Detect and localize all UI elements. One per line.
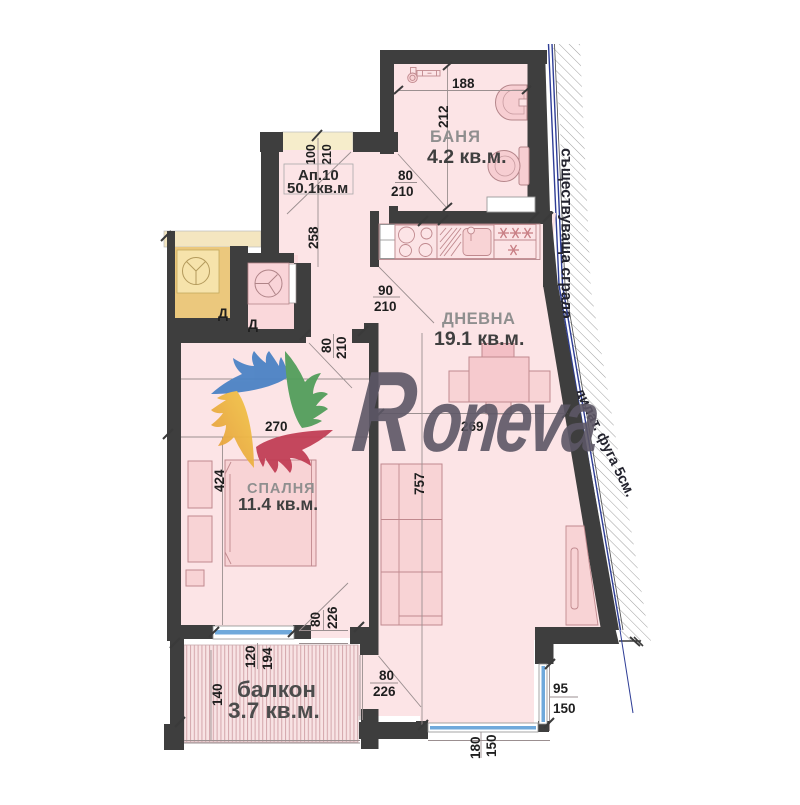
svg-text:140: 140 [210, 683, 225, 706]
svg-text:80: 80 [319, 338, 334, 353]
svg-text:270: 270 [265, 419, 288, 434]
svg-text:80: 80 [308, 612, 323, 627]
svg-text:212: 212 [436, 105, 451, 128]
svg-text:150: 150 [484, 734, 499, 757]
svg-text:150: 150 [553, 701, 576, 716]
svg-text:210: 210 [334, 336, 349, 359]
svg-text:100: 100 [304, 144, 318, 165]
svg-text:oneva: oneva [418, 371, 604, 470]
svg-text:БАНЯ: БАНЯ [430, 128, 481, 146]
svg-text:210: 210 [374, 299, 397, 314]
svg-text:95: 95 [553, 681, 569, 696]
svg-text:210: 210 [320, 144, 334, 165]
svg-text:120: 120 [243, 645, 258, 668]
svg-text:757: 757 [412, 472, 427, 495]
svg-text:258: 258 [306, 226, 321, 249]
svg-text:226: 226 [373, 684, 396, 699]
svg-text:188: 188 [452, 76, 475, 91]
svg-text:19.1 кв.м.: 19.1 кв.м. [434, 328, 524, 350]
svg-text:съществуваща сграда: съществуваща сграда [558, 148, 575, 319]
svg-text:180: 180 [468, 736, 483, 759]
svg-text:226: 226 [325, 606, 340, 629]
svg-text:80: 80 [398, 168, 413, 183]
svg-text:11.4 кв.м.: 11.4 кв.м. [238, 494, 318, 514]
svg-text:210: 210 [391, 184, 414, 199]
svg-text:424: 424 [212, 469, 227, 492]
svg-text:90: 90 [378, 283, 393, 298]
svg-text:194: 194 [260, 647, 275, 670]
svg-text:ДНЕВНА: ДНЕВНА [442, 310, 515, 328]
svg-text:50.1кв.м: 50.1кв.м [287, 180, 348, 197]
svg-text:Д: Д [248, 316, 258, 332]
svg-text:80: 80 [379, 668, 394, 683]
svg-text:Д: Д [218, 305, 228, 321]
svg-text:3.7 кв.м.: 3.7 кв.м. [228, 698, 320, 723]
svg-text:4.2 кв.м.: 4.2 кв.м. [427, 146, 507, 168]
